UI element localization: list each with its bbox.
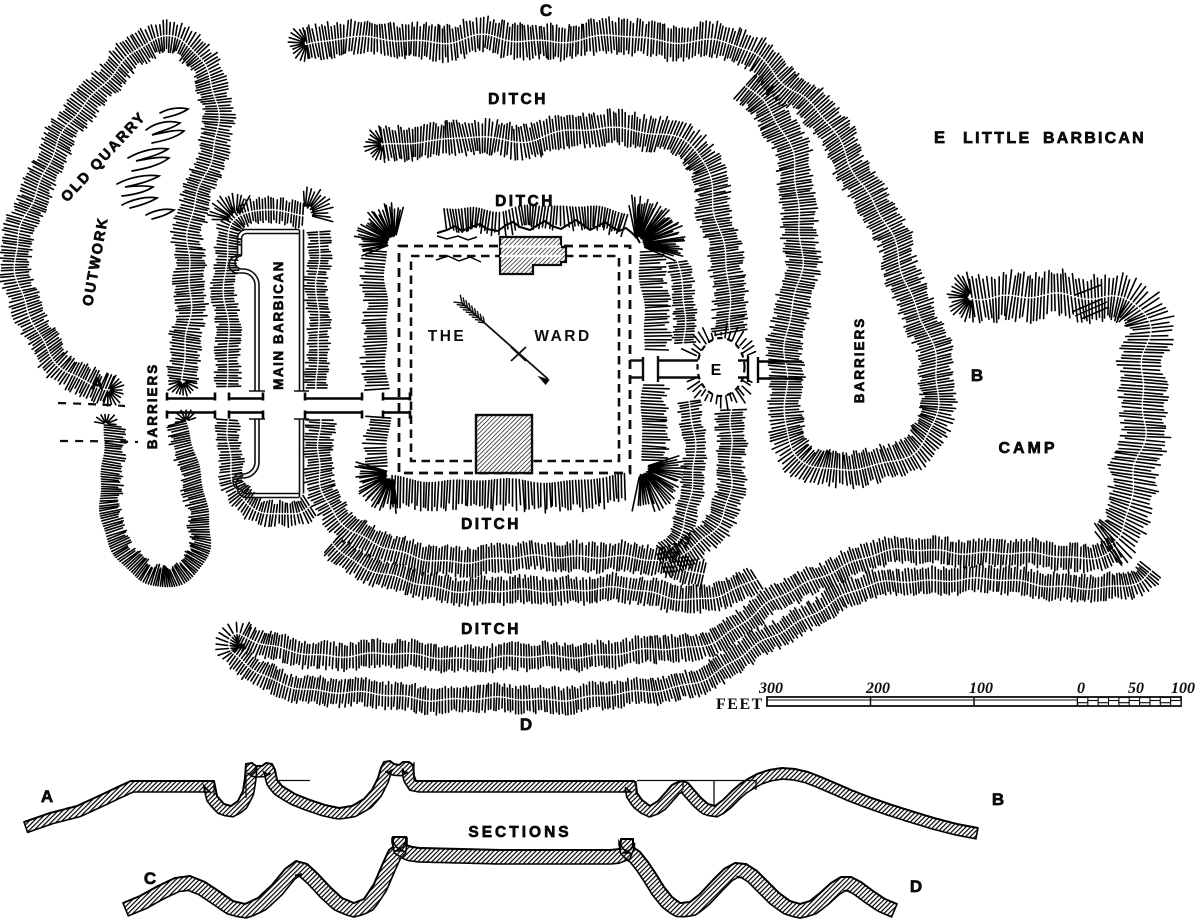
svg-text:E: E — [711, 362, 722, 379]
svg-text:BARRIERS: BARRIERS — [852, 317, 867, 404]
svg-text:50: 50 — [1128, 680, 1144, 697]
svg-text:0: 0 — [1077, 680, 1085, 697]
svg-text:300: 300 — [758, 680, 783, 697]
svg-text:E: E — [934, 129, 948, 147]
svg-text:A: A — [41, 787, 53, 806]
svg-text:BARRIERS: BARRIERS — [145, 363, 160, 450]
svg-text:C: C — [540, 1, 552, 20]
svg-text:100: 100 — [969, 680, 993, 697]
svg-text:C: C — [144, 869, 156, 888]
svg-text:LITTLE: LITTLE — [963, 130, 1032, 147]
svg-text:DITCH: DITCH — [495, 193, 555, 210]
svg-text:DITCH: DITCH — [461, 621, 521, 638]
svg-text:B: B — [971, 366, 983, 385]
svg-text:WARD: WARD — [534, 328, 591, 345]
svg-text:CAMP: CAMP — [998, 440, 1057, 457]
svg-text:100: 100 — [1171, 680, 1195, 697]
svg-text:DITCH: DITCH — [461, 516, 521, 533]
svg-text:B: B — [992, 790, 1004, 809]
svg-text:DITCH: DITCH — [488, 91, 548, 108]
svg-text:200: 200 — [865, 680, 890, 697]
svg-text:SECTIONS: SECTIONS — [468, 824, 571, 841]
svg-text:THE: THE — [428, 328, 467, 345]
svg-text:D: D — [910, 877, 922, 896]
svg-text:BARBICAN: BARBICAN — [1043, 130, 1146, 147]
svg-text:MAIN BARBICAN: MAIN BARBICAN — [271, 260, 286, 390]
svg-text:FEET: FEET — [716, 696, 764, 713]
svg-text:A: A — [91, 374, 103, 393]
svg-text:D: D — [520, 715, 532, 734]
